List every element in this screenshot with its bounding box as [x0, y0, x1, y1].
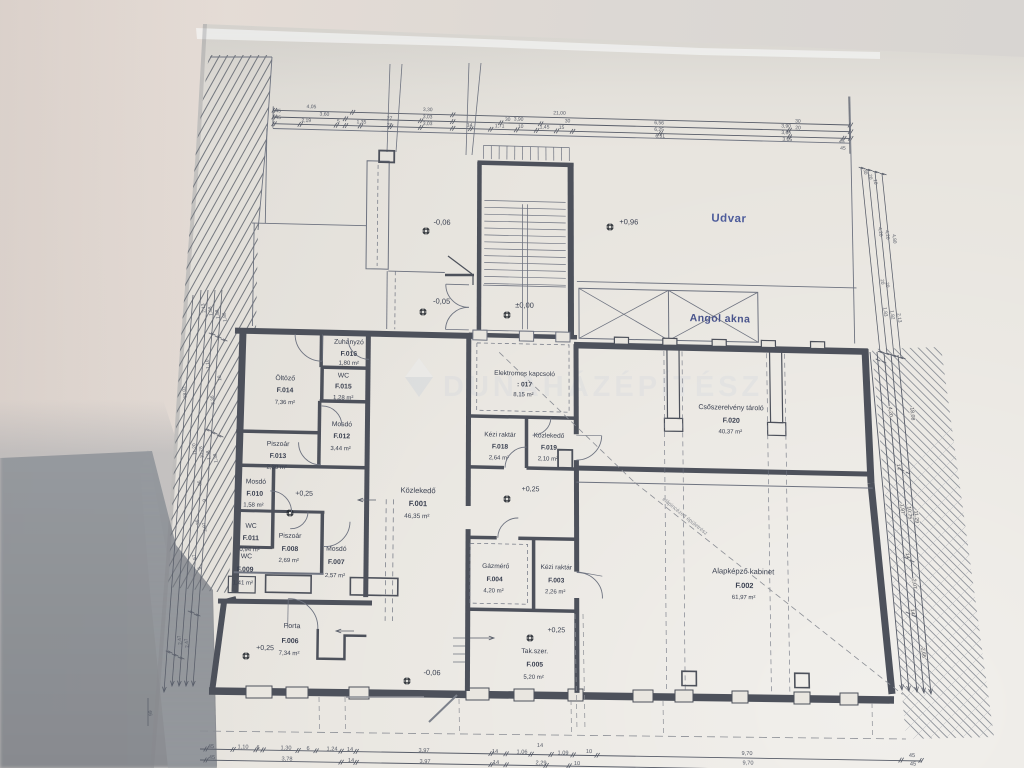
svg-text:14: 14	[347, 747, 353, 753]
svg-text:Porta: Porta	[284, 623, 301, 630]
svg-text:2,07: 2,07	[910, 579, 917, 590]
svg-text:46,35 m²: 46,35 m²	[404, 513, 429, 520]
svg-text:4,05: 4,05	[306, 104, 316, 110]
svg-text:2,30 m²: 2,30 m²	[266, 465, 286, 471]
svg-text:Öltöző: Öltöző	[275, 374, 295, 382]
svg-text:4,20: 4,20	[886, 407, 893, 418]
svg-text:2,07: 2,07	[201, 522, 208, 532]
svg-text:1,58 m²: 1,58 m²	[243, 503, 263, 509]
svg-text:99: 99	[148, 710, 155, 716]
svg-text:F.002: F.002	[735, 581, 753, 590]
svg-text:10: 10	[586, 749, 592, 755]
svg-text:Csőszerelvény tároló: Csőszerelvény tároló	[698, 404, 764, 412]
svg-text:14: 14	[348, 758, 354, 764]
svg-text:F.018: F.018	[492, 443, 509, 450]
svg-text:1,88: 1,88	[207, 306, 214, 316]
svg-text:10: 10	[872, 179, 879, 185]
svg-text:3,36: 3,36	[209, 395, 216, 405]
svg-text:+0,25: +0,25	[295, 490, 313, 497]
svg-text:Közlekedő: Közlekedő	[533, 432, 564, 440]
svg-text:8,15 m²: 8,15 m²	[513, 392, 533, 398]
svg-text:elápincézett épületrész: elápincézett épületrész	[661, 497, 709, 537]
svg-text:3,60: 3,60	[319, 112, 329, 118]
svg-text:1,41 m²: 1,41 m²	[233, 580, 253, 586]
svg-text:F.011: F.011	[243, 535, 260, 542]
svg-text:4,20: 4,20	[876, 227, 883, 237]
svg-text:1,35: 1,35	[356, 119, 366, 125]
svg-text:1,83: 1,83	[881, 307, 888, 317]
svg-text:35: 35	[195, 519, 202, 525]
svg-text:Udvar: Udvar	[711, 212, 746, 225]
svg-text:6,56: 6,56	[654, 120, 664, 126]
svg-text:57: 57	[192, 554, 199, 560]
svg-text:45: 45	[910, 761, 916, 767]
svg-text:10: 10	[574, 761, 580, 767]
svg-text:Angol akna: Angol akna	[690, 312, 751, 325]
svg-text:-0,05: -0,05	[433, 297, 450, 306]
svg-text:2,47: 2,47	[183, 638, 190, 648]
svg-text:1,38: 1,38	[205, 450, 212, 460]
svg-text:20: 20	[884, 282, 891, 288]
svg-text:5,20 m²: 5,20 m²	[523, 675, 543, 681]
svg-text:2,47: 2,47	[176, 635, 183, 645]
svg-text:45: 45	[840, 146, 846, 152]
svg-text:14: 14	[493, 760, 499, 766]
svg-text:1,88: 1,88	[221, 312, 228, 322]
svg-text:18,08: 18,08	[908, 407, 915, 421]
svg-text:+0,25: +0,25	[547, 627, 565, 634]
svg-text:1,97: 1,97	[898, 504, 905, 515]
svg-text:Kézi raktár: Kézi raktár	[484, 431, 516, 439]
svg-text:1,30: 1,30	[281, 745, 292, 751]
svg-text:Piszoár: Piszoár	[267, 441, 291, 448]
svg-text:30: 30	[505, 117, 511, 123]
svg-text:1,24: 1,24	[327, 746, 338, 752]
svg-text:Piszoár: Piszoár	[279, 533, 303, 540]
svg-text:WC: WC	[245, 523, 257, 530]
svg-text:2,26 m²: 2,26 m²	[545, 589, 565, 595]
svg-text:61,97 m²: 61,97 m²	[732, 595, 756, 601]
svg-text:15: 15	[559, 125, 565, 131]
svg-text:F.019: F.019	[541, 444, 558, 451]
svg-text:±0,00: ±0,00	[515, 300, 534, 309]
svg-text:30: 30	[795, 119, 801, 125]
svg-text:45: 45	[209, 755, 215, 761]
svg-text:F.004: F.004	[486, 576, 503, 583]
svg-text:1,10: 1,10	[204, 359, 211, 369]
svg-text:3,97: 3,97	[420, 759, 431, 765]
svg-text:18,02: 18,02	[181, 385, 188, 398]
svg-text:9: 9	[202, 498, 208, 502]
svg-text:Tak.szer.: Tak.szer.	[521, 648, 548, 655]
svg-text:1,28 m²: 1,28 m²	[333, 395, 353, 401]
svg-text:1,09: 1,09	[558, 750, 569, 756]
svg-text:Alapképző kabinet: Alapképző kabinet	[712, 566, 775, 576]
svg-text:3,90: 3,90	[514, 117, 524, 123]
svg-text:-0,06: -0,06	[433, 217, 450, 226]
svg-text:3,90: 3,90	[781, 123, 791, 129]
svg-text:F.001: F.001	[409, 499, 428, 508]
svg-text:3,30: 3,30	[423, 107, 433, 113]
svg-text:45: 45	[909, 753, 915, 759]
svg-text:F.008: F.008	[282, 546, 299, 553]
svg-text:F.014: F.014	[277, 387, 294, 394]
svg-text:85: 85	[197, 480, 204, 486]
svg-text:3,97: 3,97	[419, 748, 430, 754]
svg-text:Mosdó: Mosdó	[246, 478, 267, 485]
svg-text:1,80 m²: 1,80 m²	[338, 361, 358, 367]
svg-text:F.010: F.010	[246, 491, 263, 498]
svg-text:1,06: 1,06	[517, 749, 528, 755]
svg-text:9,70: 9,70	[742, 751, 753, 757]
svg-text:7,34 m²: 7,34 m²	[278, 650, 299, 657]
svg-text:Kézi raktár: Kézi raktár	[540, 564, 572, 572]
svg-text:1,10: 1,10	[238, 744, 249, 750]
svg-text:2,10 m²: 2,10 m²	[538, 456, 558, 462]
svg-text:27: 27	[387, 116, 393, 122]
svg-text:4,20: 4,20	[883, 230, 890, 240]
svg-text:1,71: 1,71	[495, 123, 505, 129]
svg-text:3,03: 3,03	[423, 121, 433, 127]
svg-text:3,78: 3,78	[282, 756, 293, 762]
svg-text:F.005: F.005	[526, 661, 543, 668]
svg-text:+0,96: +0,96	[619, 217, 638, 226]
svg-text:2,69 m²: 2,69 m²	[278, 558, 298, 564]
svg-text:1,82: 1,82	[888, 310, 895, 320]
svg-text:F.015: F.015	[335, 383, 352, 390]
svg-text:2,19: 2,19	[301, 118, 311, 124]
svg-text:F.013: F.013	[270, 453, 287, 460]
svg-text:F.006: F.006	[281, 638, 298, 645]
svg-text:2,13: 2,13	[895, 313, 902, 323]
svg-text:3,44 m²: 3,44 m²	[330, 446, 350, 452]
svg-text:Gázmérő: Gázmérő	[482, 563, 510, 571]
svg-text:F.009: F.009	[237, 566, 254, 573]
svg-text:2,57 m²: 2,57 m²	[325, 573, 345, 579]
svg-text:1,38: 1,38	[212, 453, 219, 463]
svg-text:14: 14	[537, 743, 543, 749]
svg-text:6,25: 6,25	[654, 127, 664, 133]
svg-text:7,36 m²: 7,36 m²	[275, 400, 295, 406]
svg-text:2,13: 2,13	[200, 303, 207, 313]
svg-text:+0,25: +0,25	[522, 486, 540, 493]
svg-text:-0,06: -0,06	[423, 668, 440, 677]
svg-text:30: 30	[565, 118, 571, 124]
svg-text:F.007: F.007	[328, 559, 345, 566]
svg-text:F.020: F.020	[723, 417, 740, 424]
svg-text:WC: WC	[338, 372, 350, 379]
svg-text:2,66: 2,66	[919, 648, 926, 659]
svg-text:F.012: F.012	[333, 433, 350, 440]
svg-text:4,80: 4,80	[890, 234, 897, 244]
svg-text:9,70: 9,70	[743, 760, 754, 766]
svg-text:F.003: F.003	[548, 577, 565, 584]
svg-text:1,88: 1,88	[214, 309, 221, 319]
svg-text:DUNAHÁZÉPÍTÉSZ: DUNAHÁZÉPÍTÉSZ	[443, 369, 763, 403]
svg-text:WC: WC	[241, 553, 253, 560]
svg-text:20: 20	[795, 125, 801, 131]
svg-text:Közlekedő: Közlekedő	[400, 486, 435, 496]
svg-text:10: 10	[217, 375, 224, 381]
svg-text:11,29: 11,29	[912, 510, 919, 523]
svg-text:40,37 m²: 40,37 m²	[718, 429, 742, 435]
svg-text:21,00: 21,00	[553, 110, 566, 116]
svg-text:Mosdó: Mosdó	[326, 546, 347, 553]
svg-text:+0,25: +0,25	[256, 645, 274, 652]
svg-text:6: 6	[306, 746, 309, 752]
svg-text:4,20 m²: 4,20 m²	[483, 588, 503, 594]
svg-text:10,75: 10,75	[905, 506, 912, 520]
svg-text:3,03: 3,03	[423, 114, 433, 120]
